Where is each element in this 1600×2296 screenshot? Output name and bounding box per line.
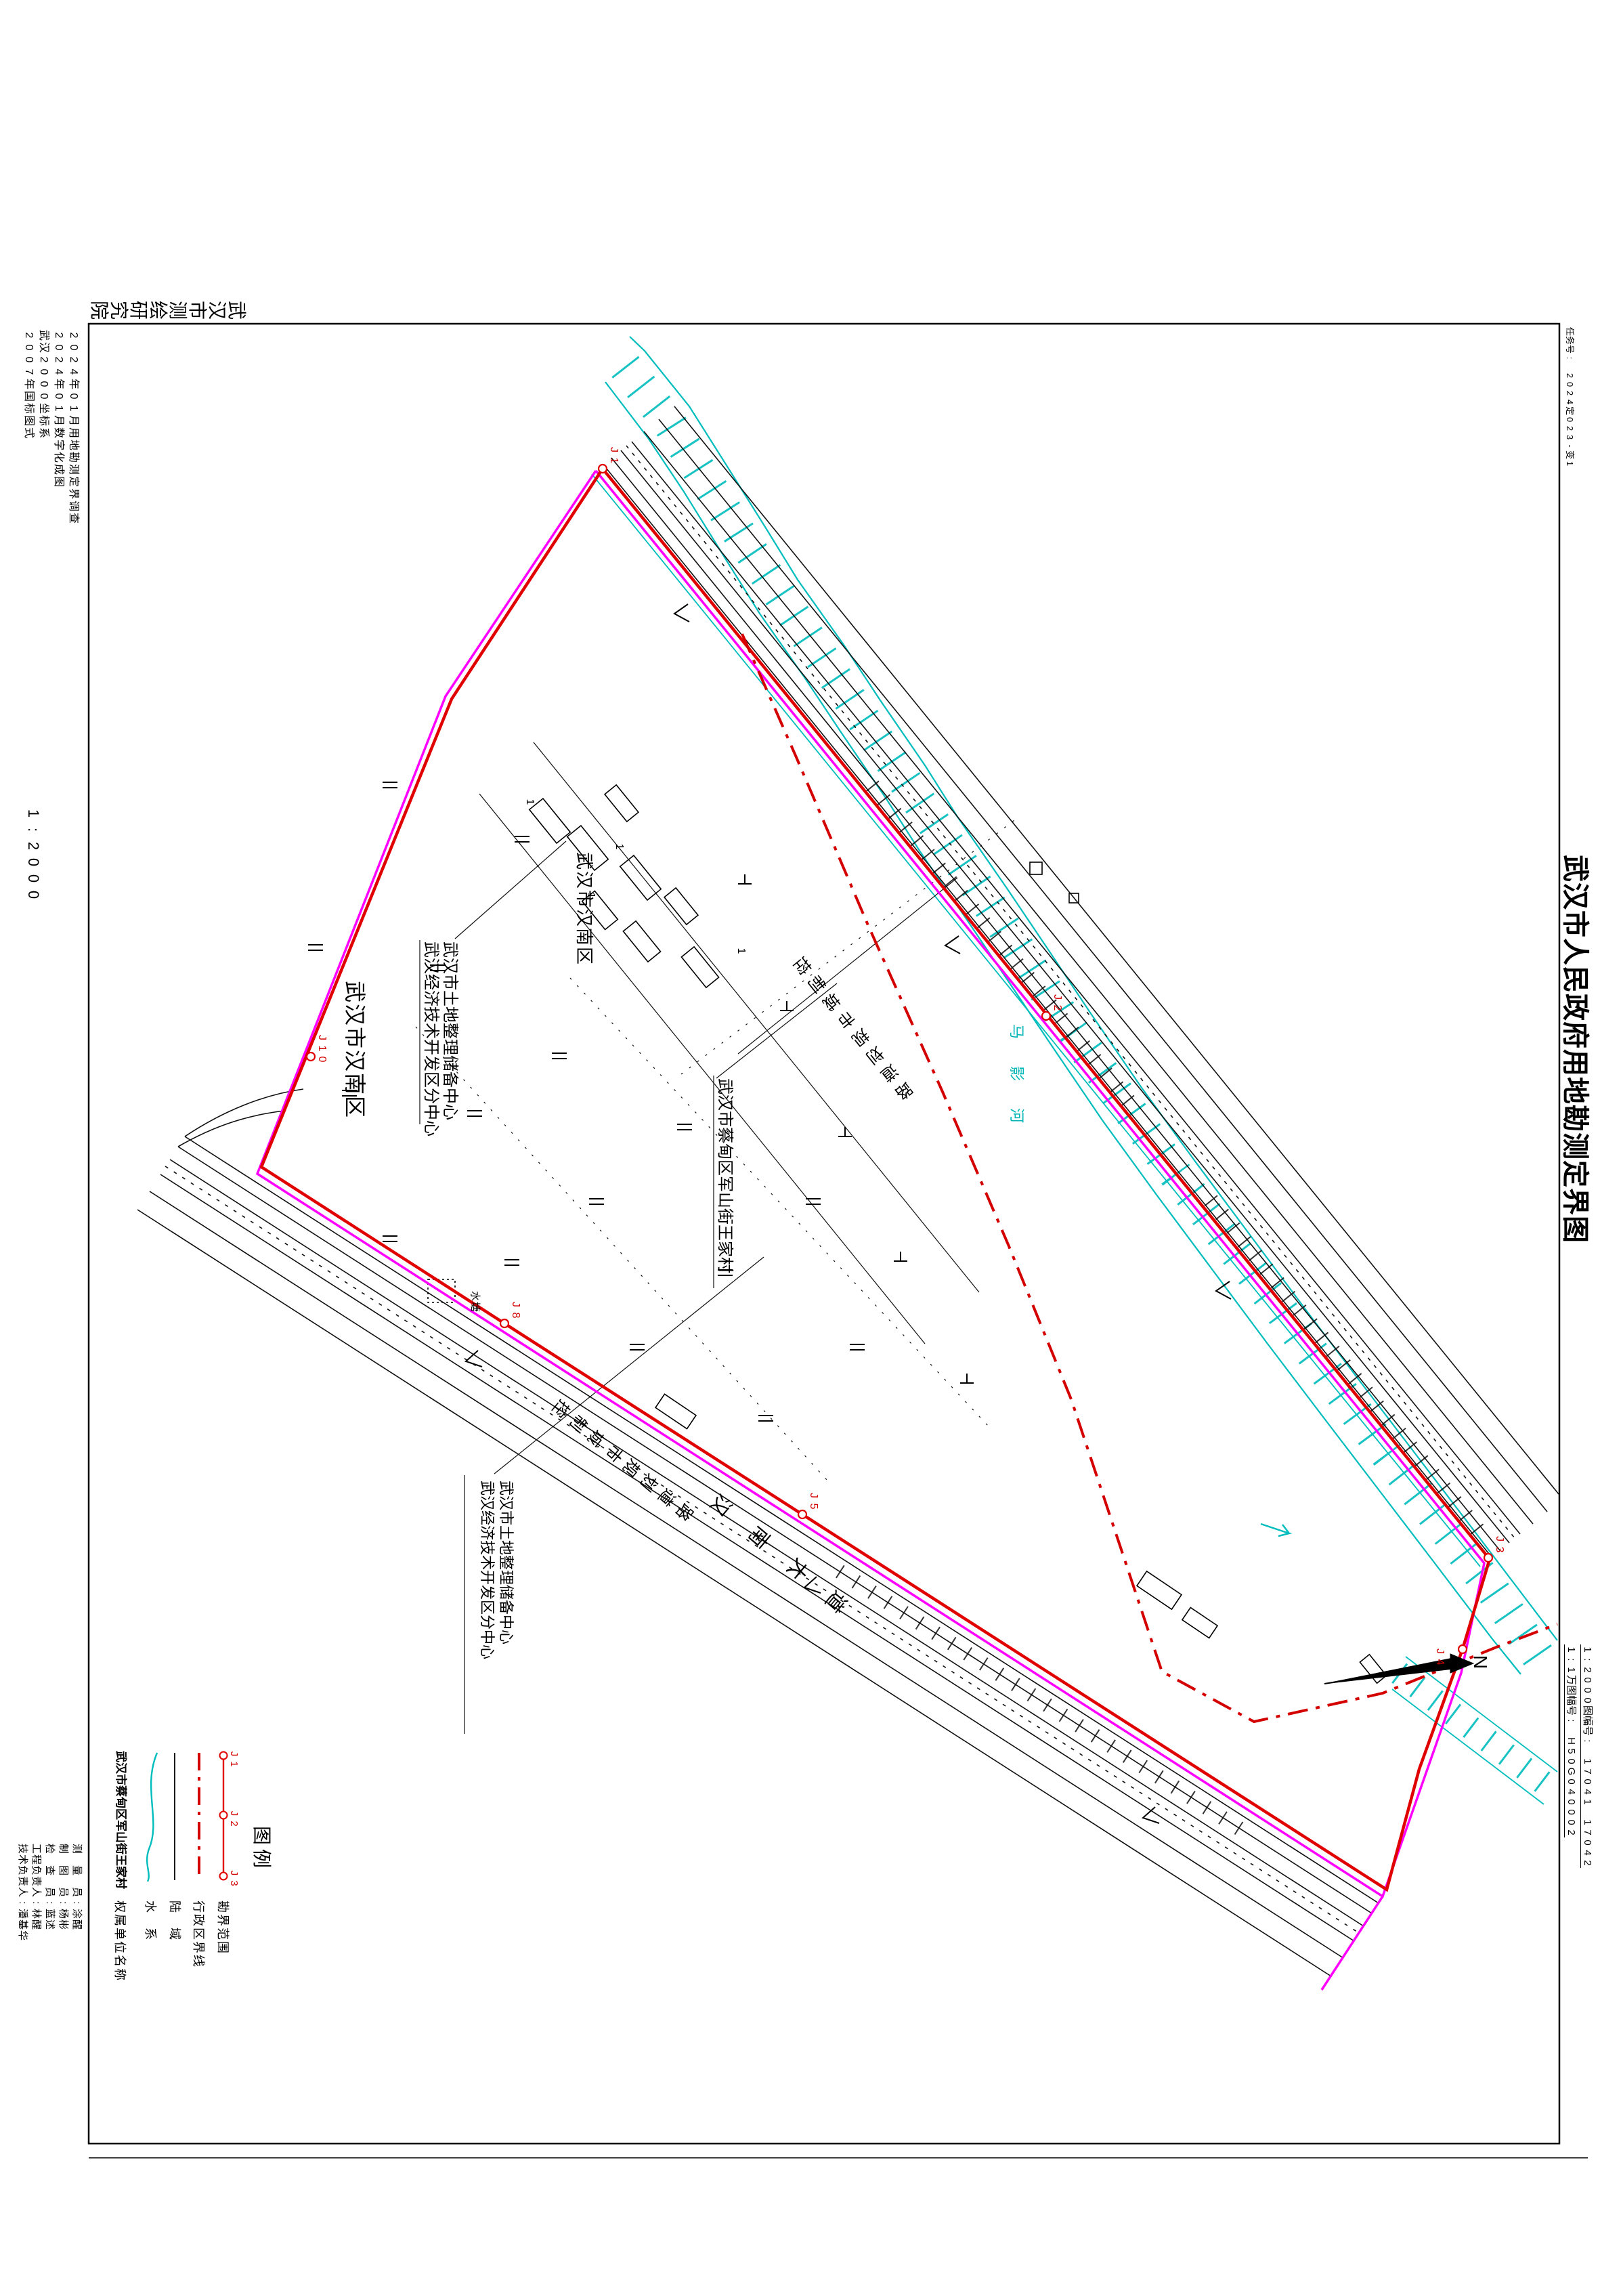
river <box>592 337 1557 1804</box>
label-storey-2: 1 <box>613 841 624 852</box>
sheet-number-2000: 1:2000图幅号: 17041 17042 <box>1580 1644 1593 1868</box>
north-label: N <box>1471 1653 1490 1672</box>
admin-boundary <box>742 634 1557 1722</box>
signature-technical-lead: 技术负责人:潘基华 <box>18 1844 28 1940</box>
signature-project-lead: 工程负责人:林醒 <box>31 1844 41 1930</box>
label-owner1-line1: 武汉市土地整理储备中心 <box>441 941 458 1120</box>
boundary-point-j3: J3 <box>1494 1533 1505 1555</box>
survey-boundary <box>261 465 1492 1890</box>
signature-checker: 检 查 员:蓝述 <box>45 1844 55 1930</box>
label-storey-4: 1 <box>735 945 746 956</box>
label-pond: 水塘 <box>470 1291 480 1312</box>
legend-point-j3: J3 <box>229 1868 239 1888</box>
map-scale: 1:2000 <box>26 806 41 902</box>
survey-note-1: 2024年01月用地勘测定界调查 <box>68 330 79 524</box>
survey-sheet: { "sheet": { "task_no": "任务号: 2024定023-变… <box>0 0 1600 2296</box>
boundary-point-j8: J8 <box>510 1299 521 1321</box>
legend-point-j2: J2 <box>229 1808 239 1829</box>
boundary-point-j4: J4 <box>1434 1646 1445 1667</box>
legend-symbols <box>147 1752 227 1882</box>
legend-label-survey-boundary: 勘界范围 <box>217 1900 229 1953</box>
label-owner2-line1: 武汉市土地整理储备中心 <box>498 1481 513 1644</box>
label-owner2-line2: 武汉经济技术开发区分中心 <box>479 1481 494 1659</box>
cadastral-boundary <box>257 471 1484 1990</box>
legend-owner-example: 武汉市蔡甸区军山街王家村 <box>115 1751 127 1889</box>
label-district-hannan-b: 武汉市汉南区 <box>576 852 593 964</box>
label-storey-3: 1 <box>585 890 596 901</box>
legend-header: 图例 <box>252 1826 271 1868</box>
label-storey-1: 1 <box>524 796 535 807</box>
task-number: 任务号: 2024定023-变1 <box>1565 327 1574 468</box>
boundary-point-j1: J1 <box>608 444 619 466</box>
signature-drafter: 制 图 员:杨彬 <box>58 1844 68 1930</box>
boundary-point-j2: J2 <box>1052 992 1062 1013</box>
signature-surveyor: 测 量 员:涂醒 <box>72 1844 82 1930</box>
legend-point-j1: J1 <box>229 1749 239 1769</box>
sheet-title: 武汉市人民政府用地勘测定界图 <box>1561 855 1588 1243</box>
legend-label-admin-boundary: 行政区界线 <box>192 1900 204 1967</box>
legend-label-water: 水 系 <box>144 1900 156 1940</box>
survey-note-3: 武汉2000坐标系 <box>38 330 49 438</box>
label-district-hannan-a: 武汉市汉南区 <box>344 981 366 1118</box>
boundary-point-j10: J10 <box>316 1032 327 1065</box>
label-river-name: 马影河 <box>1009 1024 1024 1123</box>
boundary-point-j5: J5 <box>808 1490 819 1512</box>
legend-label-owner-name: 权属单位名称 <box>114 1900 126 1980</box>
label-village: 武汉市蔡甸区军山街王家村 <box>716 1078 733 1273</box>
sheet-number-10000: 1:1万图幅号: H50G040002 <box>1564 1644 1576 1837</box>
label-owner1-line2: 武汉经济技术开发区分中心 <box>423 941 439 1136</box>
upper-road <box>603 406 1559 1557</box>
survey-map <box>0 0 1600 2296</box>
survey-note-4: 2007年国标图式 <box>23 330 34 438</box>
vegetation-symbols <box>308 782 974 1421</box>
survey-note-2: 2024年01月数字化成图 <box>53 330 64 487</box>
agency-name: 武汉市测绘研究院 <box>89 301 246 320</box>
legend-label-land: 陆 域 <box>169 1900 181 1940</box>
